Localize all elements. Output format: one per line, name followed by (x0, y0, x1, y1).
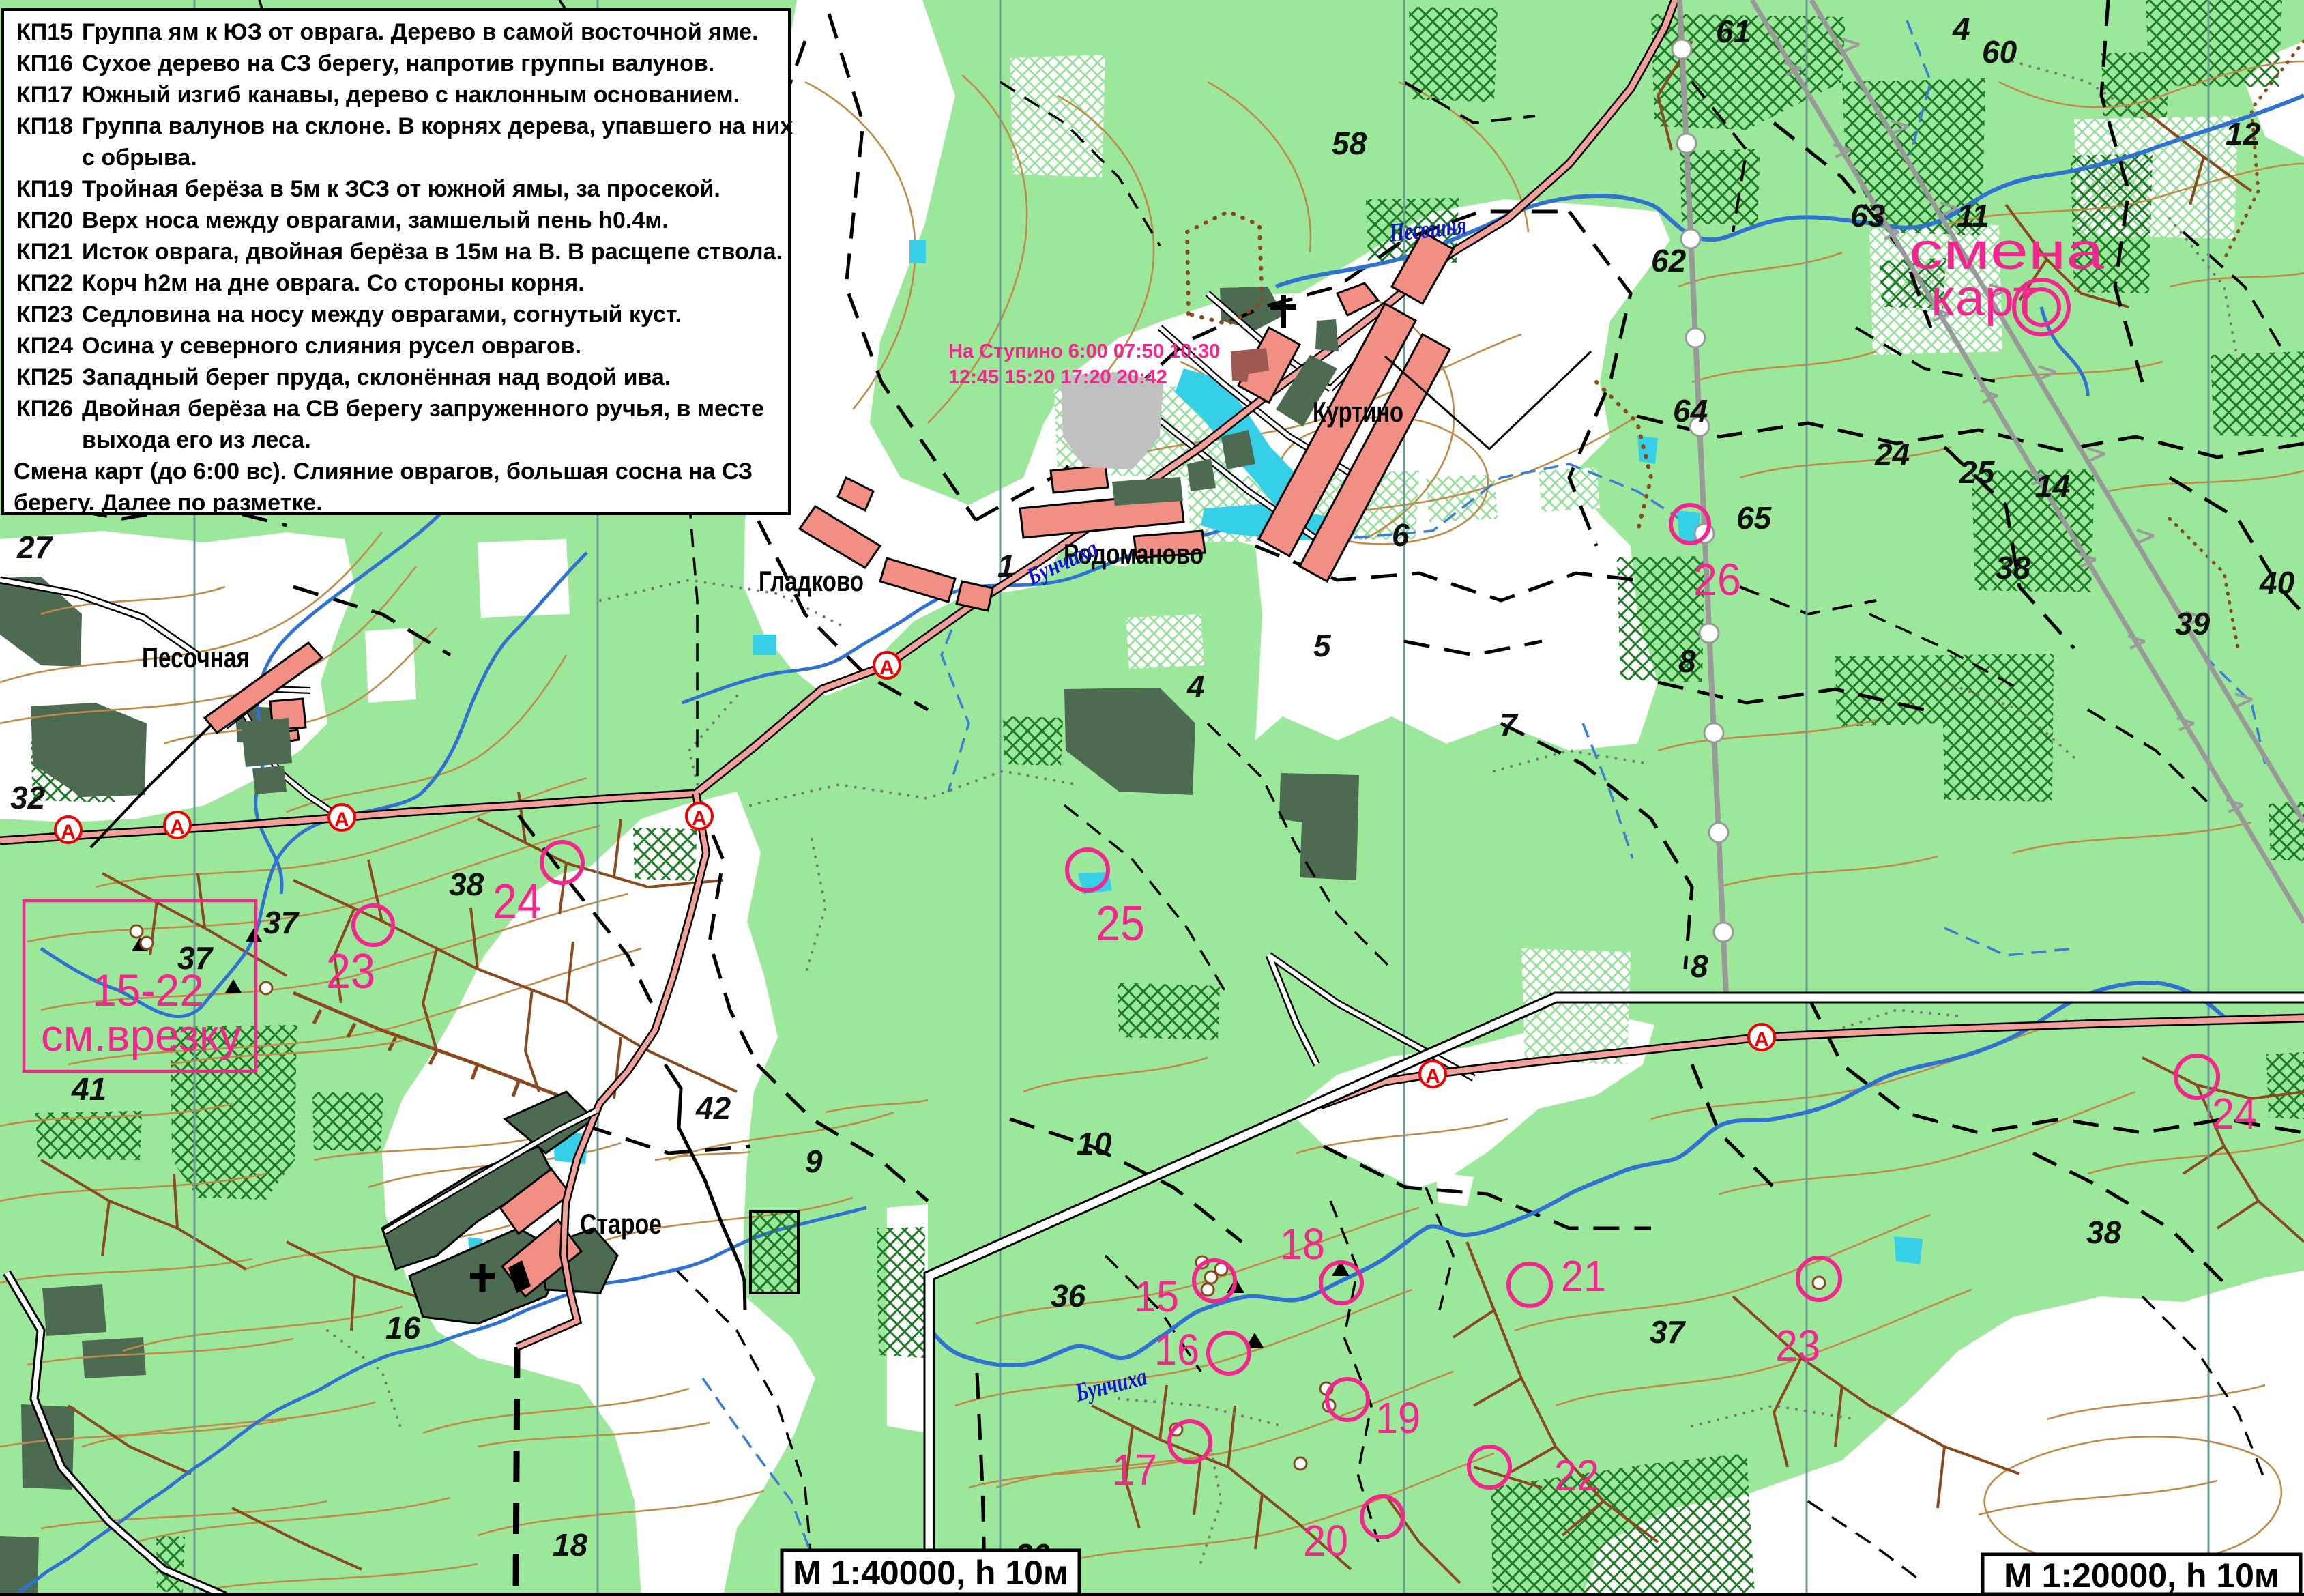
svg-text:5: 5 (1313, 628, 1332, 663)
svg-text:На Ступино 6:00 07:50 10:30: На Ступино 6:00 07:50 10:30 (948, 340, 1220, 362)
svg-text:23: 23 (326, 944, 375, 999)
svg-text:КП17: КП17 (16, 82, 73, 108)
svg-text:38: 38 (2086, 1215, 2122, 1250)
svg-text:37: 37 (263, 905, 300, 940)
svg-text:Группа валунов на склоне. В ко: Группа валунов на склоне. В корнях дерев… (82, 113, 793, 139)
svg-text:М 1:40000, h 10м: М 1:40000, h 10м (793, 1554, 1068, 1592)
svg-text:9: 9 (805, 1144, 823, 1179)
svg-text:КП18: КП18 (16, 113, 73, 139)
svg-text:A: A (170, 816, 185, 839)
svg-text:24: 24 (2212, 1089, 2257, 1138)
svg-text:25: 25 (1959, 454, 1996, 490)
svg-text:65: 65 (1736, 500, 1773, 536)
svg-text:22: 22 (1554, 1451, 1599, 1500)
svg-text:18: 18 (1280, 1219, 1325, 1268)
svg-text:Верх носа между оврагами, замш: Верх носа между оврагами, замшелый пень … (82, 207, 669, 233)
svg-text:24: 24 (493, 875, 542, 929)
svg-text:КП23: КП23 (16, 302, 73, 328)
svg-text:карт: карт (1931, 269, 2037, 327)
svg-text:62: 62 (1651, 243, 1687, 278)
svg-text:Смена карт (до 6:00 вс). Слиян: Смена карт (до 6:00 вс). Слияние оврагов… (14, 459, 753, 484)
svg-text:42: 42 (695, 1090, 731, 1126)
svg-text:24: 24 (1874, 437, 1910, 472)
svg-text:КП20: КП20 (16, 207, 73, 233)
svg-text:38: 38 (1996, 550, 2031, 585)
svg-text:КП22: КП22 (16, 270, 73, 296)
svg-text:63: 63 (1850, 198, 1886, 233)
svg-text:60: 60 (1982, 34, 2017, 70)
svg-text:A: A (879, 656, 894, 679)
svg-text:Тройная берёза в 5м к ЗСЗ от ю: Тройная берёза в 5м к ЗСЗ от южной ямы, … (82, 176, 720, 202)
svg-text:16: 16 (1154, 1325, 1199, 1374)
svg-text:16: 16 (385, 1310, 421, 1346)
svg-text:32: 32 (10, 780, 46, 815)
svg-text:14: 14 (2035, 468, 2070, 504)
svg-text:Старое: Старое (580, 1208, 662, 1240)
svg-text:12:45 15:20 17:20 20:42: 12:45 15:20 17:20 20:42 (948, 366, 1167, 388)
svg-text:Гладково: Гладково (759, 565, 864, 597)
svg-text:КП26: КП26 (16, 396, 73, 422)
svg-text:Седловина на носу между оврага: Седловина на носу между оврагами, согнут… (82, 302, 682, 328)
svg-text:19: 19 (1375, 1393, 1420, 1442)
svg-text:39: 39 (2175, 606, 2211, 641)
svg-text:61: 61 (1716, 14, 1751, 49)
svg-text:A: A (1754, 1028, 1769, 1051)
svg-text:Куртино: Куртино (1313, 396, 1403, 428)
svg-text:см.врезку: см.врезку (41, 1010, 242, 1060)
svg-text:36: 36 (1051, 1278, 1086, 1314)
svg-text:Осина у северного слияния русе: Осина у северного слияния русел оврагов. (82, 333, 581, 359)
svg-text:15-22: 15-22 (92, 965, 204, 1015)
svg-text:КП21: КП21 (16, 239, 73, 265)
svg-text:23: 23 (1775, 1321, 1820, 1370)
svg-text:М 1:20000, h 10м: М 1:20000, h 10м (2004, 1556, 2279, 1595)
svg-text:1: 1 (997, 548, 1015, 583)
svg-text:Западный берег пруда, склонённ: Западный берег пруда, склонённая над вод… (82, 364, 671, 390)
svg-text:64: 64 (1673, 393, 1708, 429)
svg-text:A: A (1425, 1065, 1440, 1088)
svg-text:15: 15 (1134, 1272, 1179, 1321)
svg-text:25: 25 (1096, 897, 1145, 951)
svg-text:Южный изгиб канавы, дерево с н: Южный изгиб канавы, дерево с наклонным о… (82, 82, 740, 108)
svg-text:КП19: КП19 (16, 176, 73, 202)
svg-text:Песочная: Песочная (142, 641, 250, 673)
svg-text:7: 7 (1500, 707, 1519, 742)
svg-text:8: 8 (1691, 948, 1708, 984)
svg-text:20: 20 (1303, 1516, 1348, 1565)
svg-text:выхода его из леса.: выхода его из леса. (82, 427, 311, 453)
svg-text:8: 8 (1678, 643, 1696, 679)
svg-text:КП16: КП16 (16, 50, 73, 76)
svg-text:Группа ям к ЮЗ от оврага. Дере: Группа ям к ЮЗ от оврага. Дерево в самой… (82, 19, 759, 45)
svg-text:10: 10 (1077, 1126, 1112, 1161)
svg-text:Исток оврага, двойная берёза в: Исток оврага, двойная берёза в 15м на В.… (82, 239, 783, 265)
svg-text:4: 4 (1952, 11, 1970, 46)
svg-text:с обрыва.: с обрыва. (82, 145, 197, 171)
svg-text:A: A (334, 809, 349, 831)
svg-text:41: 41 (71, 1071, 106, 1107)
svg-text:берегу. Далее по разметке.: берегу. Далее по разметке. (14, 490, 323, 516)
svg-text:4: 4 (1186, 669, 1205, 704)
svg-text:КП25: КП25 (16, 364, 73, 390)
svg-text:Корч h2м на дне оврага. Со сто: Корч h2м на дне оврага. Со стороны корня… (82, 270, 585, 296)
svg-text:КП24: КП24 (16, 333, 73, 359)
svg-text:38: 38 (449, 867, 484, 902)
svg-text:40: 40 (2259, 565, 2295, 600)
svg-text:27: 27 (16, 529, 54, 565)
svg-text:A: A (61, 821, 76, 843)
svg-text:6: 6 (1392, 517, 1410, 553)
svg-text:58: 58 (1332, 126, 1367, 161)
svg-text:37: 37 (1650, 1314, 1687, 1350)
svg-text:17: 17 (1112, 1445, 1157, 1494)
svg-text:A: A (692, 807, 707, 830)
svg-text:26: 26 (1693, 554, 1741, 605)
svg-text:КП15: КП15 (16, 19, 73, 45)
svg-text:21: 21 (1561, 1251, 1606, 1301)
svg-text:12: 12 (2226, 116, 2261, 151)
svg-text:Двойная берёза на СВ берегу за: Двойная берёза на СВ берегу запруженного… (82, 396, 764, 422)
svg-text:18: 18 (553, 1527, 588, 1563)
svg-text:Сухое дерево на СЗ берегу, нап: Сухое дерево на СЗ берегу, напротив груп… (82, 50, 714, 76)
